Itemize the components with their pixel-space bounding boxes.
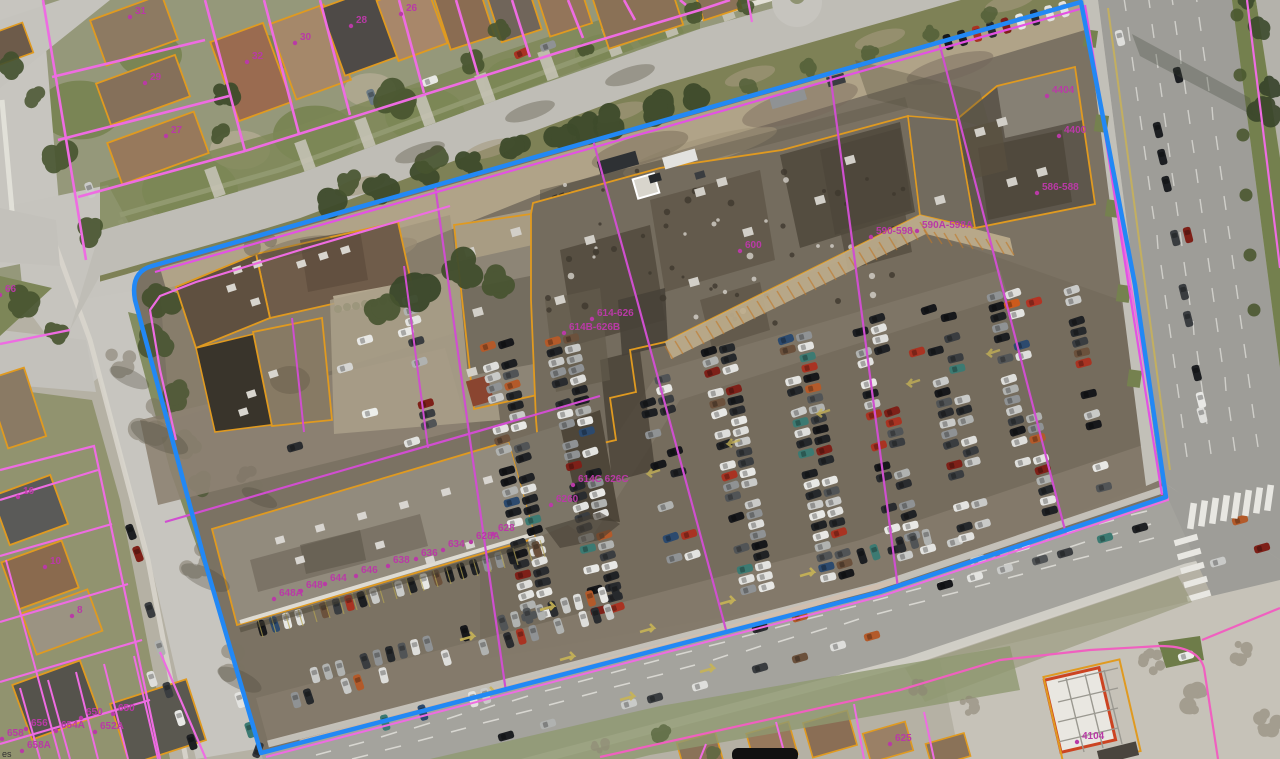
svg-text:590-598: 590-598 (876, 226, 913, 237)
svg-text:27: 27 (171, 125, 183, 136)
svg-text:30: 30 (300, 32, 312, 43)
svg-text:656: 656 (31, 718, 48, 729)
svg-text:614B-626B: 614B-626B (569, 322, 620, 333)
svg-text:646: 646 (361, 565, 378, 576)
svg-text:628: 628 (498, 523, 515, 534)
svg-text:31: 31 (135, 6, 147, 17)
svg-text:628A: 628A (476, 531, 500, 542)
svg-text:634: 634 (448, 539, 465, 550)
svg-text:66: 66 (5, 284, 17, 295)
svg-text:32: 32 (252, 51, 264, 62)
svg-text:10: 10 (50, 556, 62, 567)
svg-text:4400: 4400 (1064, 125, 1087, 136)
svg-text:6260: 6260 (556, 494, 579, 505)
svg-text:4104: 4104 (1082, 731, 1105, 742)
svg-text:654A: 654A (61, 720, 85, 731)
svg-text:es: es (2, 749, 12, 759)
svg-text:614C 626C: 614C 626C (578, 474, 629, 485)
svg-text:26: 26 (406, 3, 418, 14)
svg-text:658: 658 (7, 728, 24, 739)
svg-text:8: 8 (77, 605, 83, 616)
svg-text:4404: 4404 (1052, 85, 1075, 96)
svg-text:586-588: 586-588 (1042, 182, 1079, 193)
svg-text:648: 648 (306, 580, 323, 591)
svg-text:658A: 658A (27, 740, 51, 751)
svg-text:625: 625 (895, 733, 912, 744)
svg-text:16: 16 (23, 486, 35, 497)
svg-text:29: 29 (150, 72, 162, 83)
svg-text:652A: 652A (100, 721, 124, 732)
svg-text:644: 644 (330, 573, 347, 584)
svg-text:636: 636 (421, 548, 438, 559)
svg-text:638: 638 (393, 555, 410, 566)
svg-text:614-626: 614-626 (597, 308, 634, 319)
svg-text:650: 650 (118, 703, 135, 714)
svg-text:650: 650 (86, 707, 103, 718)
svg-text:600: 600 (745, 240, 762, 251)
svg-text:590A-598A: 590A-598A (922, 220, 973, 231)
svg-text:28: 28 (356, 15, 368, 26)
